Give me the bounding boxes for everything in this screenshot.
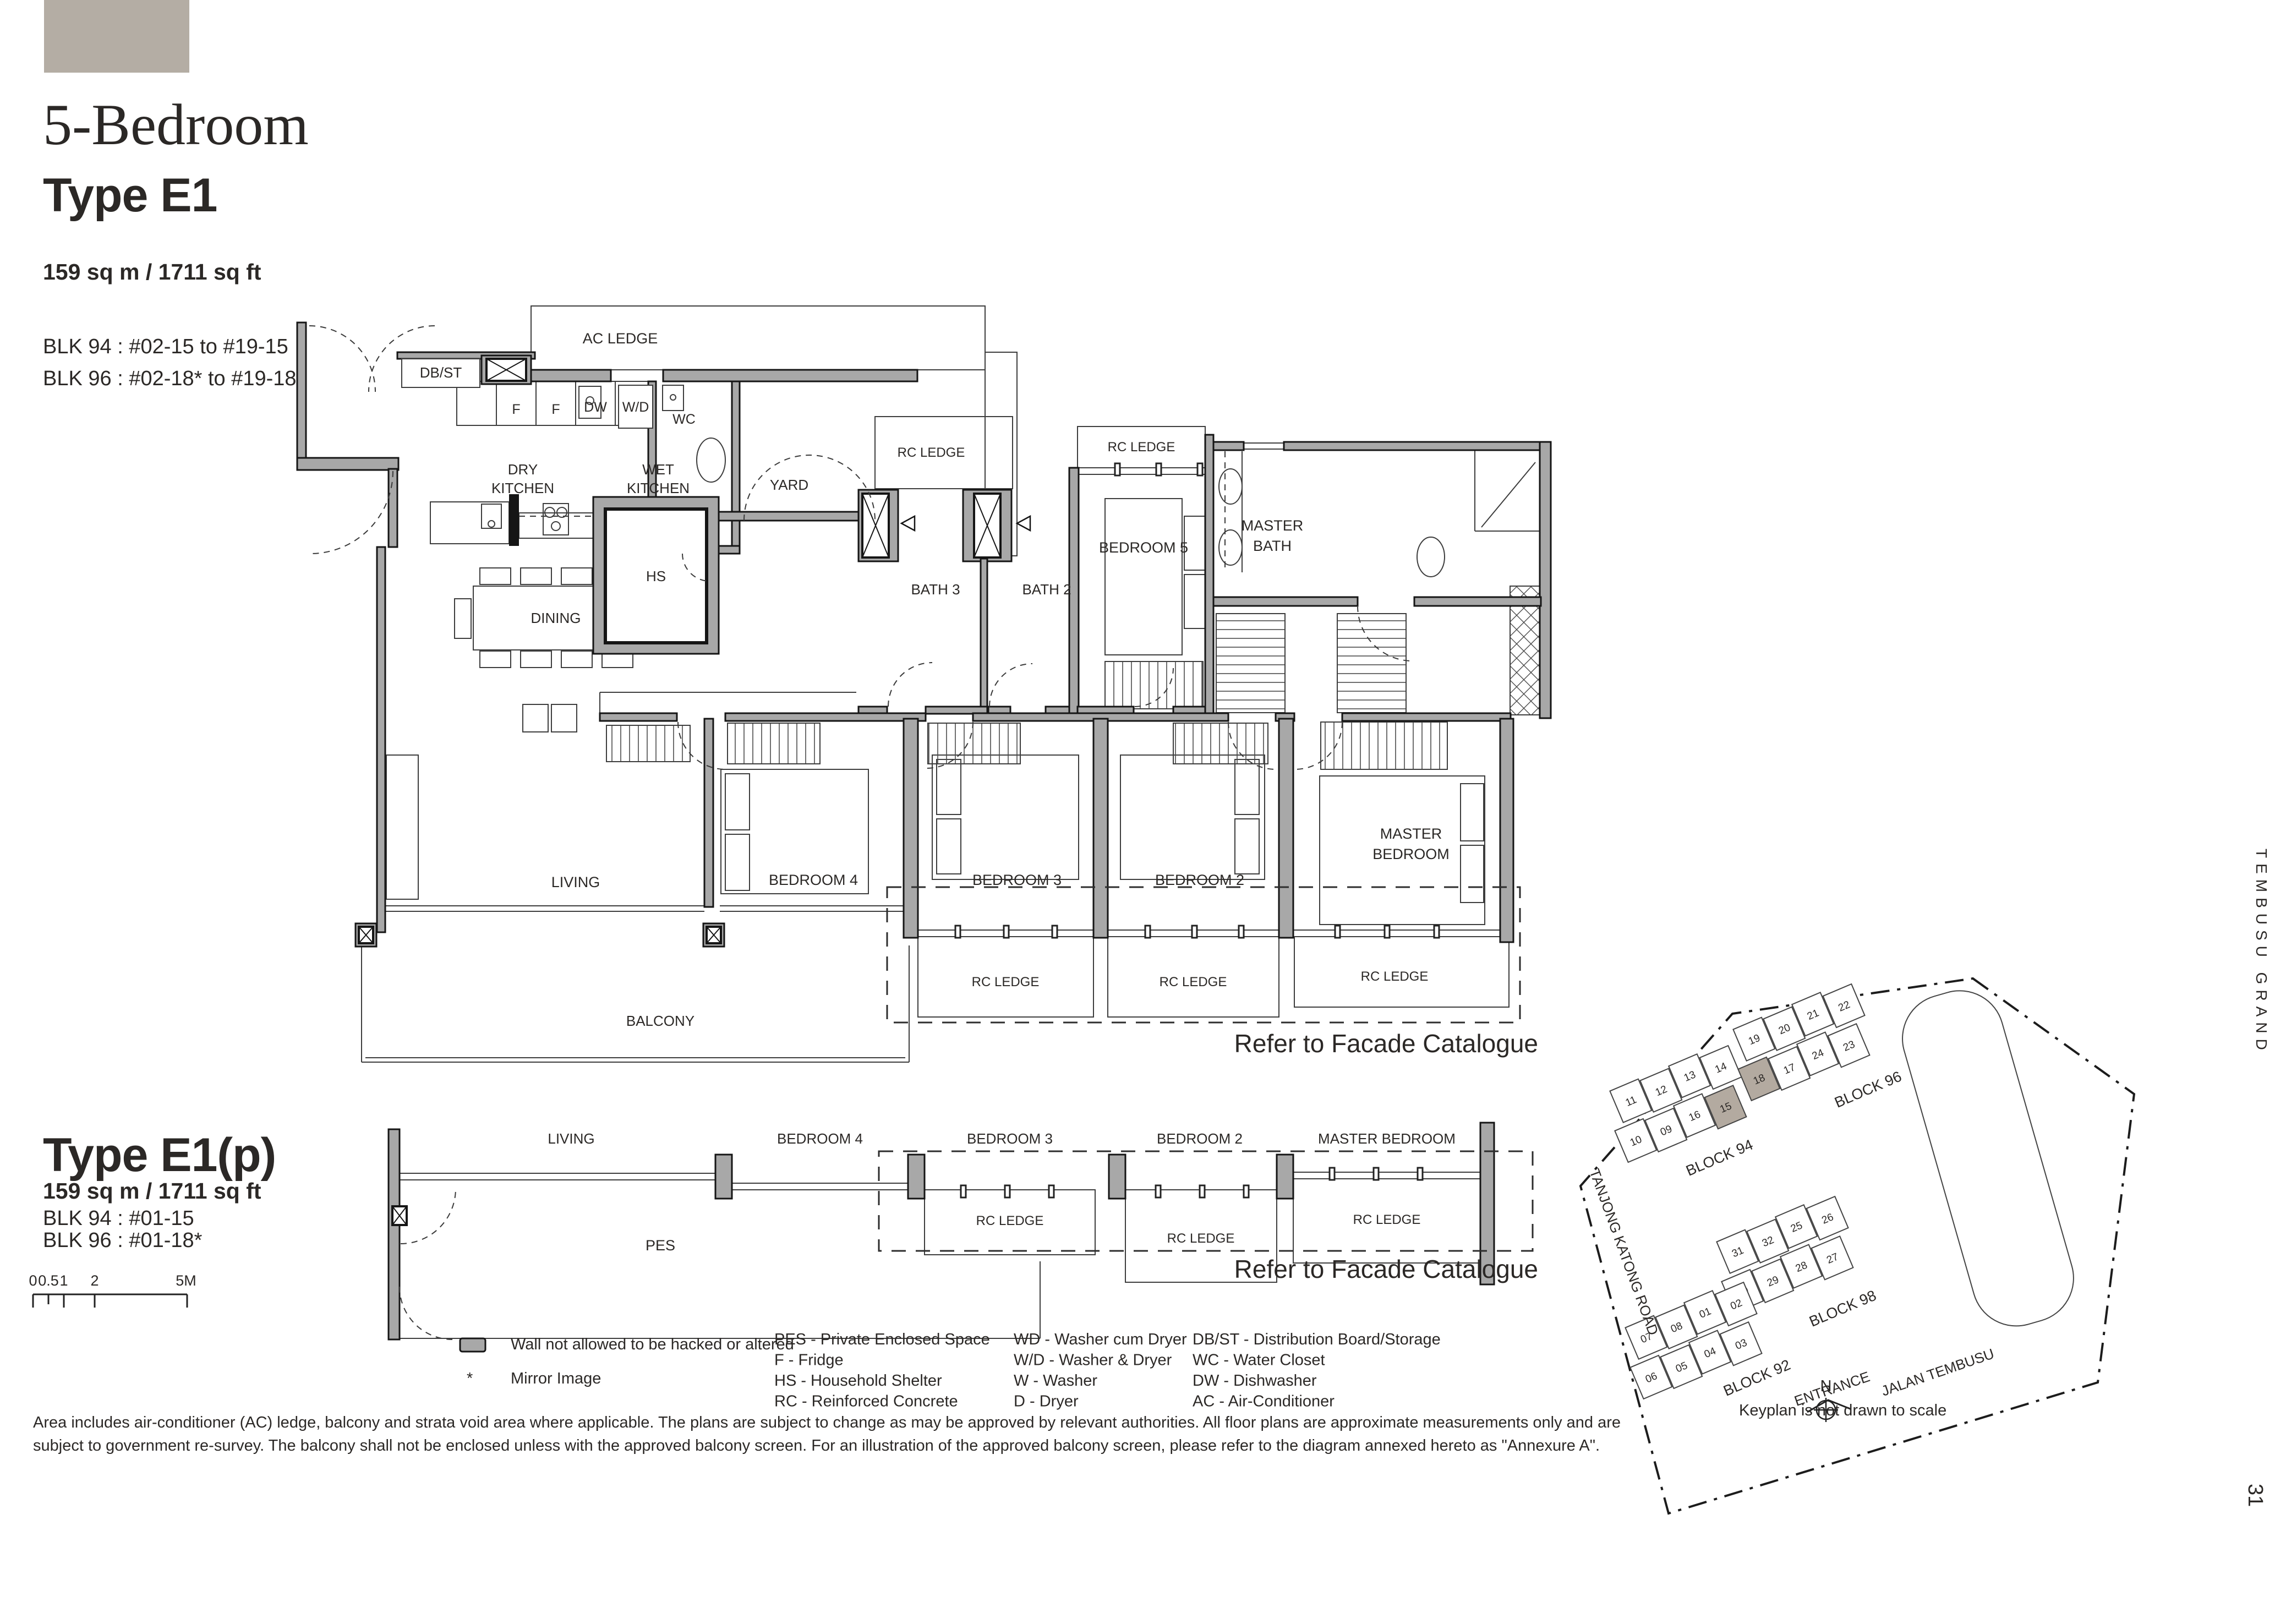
label-hs: HS xyxy=(646,568,666,584)
label-fridge-1: F xyxy=(512,402,520,417)
scale-mark-3: 2 xyxy=(90,1272,99,1289)
label-fridge-2: F xyxy=(551,402,560,417)
legend-col2-item-3: D - Dryer xyxy=(1014,1393,1079,1410)
label-bedroom-5: BEDROOM 5 xyxy=(1099,539,1188,556)
floorplan-page: 5-Bedroom Type E1 159 sq m / 1711 sq ft … xyxy=(0,0,2275,1624)
label-yard: YARD xyxy=(770,477,808,493)
label-jalan-tembusu: JALAN TEMBUSU xyxy=(1879,1345,1997,1399)
e1p-stack-2: BLK 96 : #01-18* xyxy=(43,1229,203,1252)
scale-mark-0: 0 xyxy=(29,1272,37,1289)
scale-bar: 00.5125M xyxy=(29,1272,196,1308)
legend: Wall not allowed to be hacked or altered… xyxy=(460,1331,1441,1410)
fixtures-and-furniture xyxy=(362,306,1540,1338)
mirror-legend-note: Mirror Image xyxy=(511,1370,601,1387)
e1-stack-2: BLK 96 : #02-18* to #19-18* xyxy=(43,367,305,390)
p-label-living: LIVING xyxy=(548,1130,594,1147)
p-label-bedroom-4: BEDROOM 4 xyxy=(777,1130,863,1147)
footer-line-1: Area includes air-conditioner (AC) ledge… xyxy=(33,1414,1621,1431)
label-dbst: DB/ST xyxy=(420,364,462,381)
label-bath-2: BATH 2 xyxy=(1022,581,1071,598)
unit-e1p-heading: Type E1(p) 159 sq m / 1711 sq ft BLK 94 … xyxy=(43,1129,276,1252)
mirror-symbol: * xyxy=(467,1370,473,1387)
header-accent-block xyxy=(44,0,189,73)
e1-area: 159 sq m / 1711 sq ft xyxy=(43,259,261,285)
label-dry-kitchen: DRYKITCHEN xyxy=(491,461,554,496)
e1p-stack-1: BLK 94 : #01-15 xyxy=(43,1207,194,1230)
p-label-bedroom-3: BEDROOM 3 xyxy=(967,1130,1053,1147)
north-label: N xyxy=(1820,1377,1832,1395)
label-rc-ledge-master: RC LEDGE xyxy=(1361,969,1429,984)
legend-col2-item-0: WD - Washer cum Dryer xyxy=(1014,1331,1187,1348)
label-bath-3: BATH 3 xyxy=(911,581,960,598)
scale-mark-4: 5M xyxy=(176,1272,196,1289)
footer-line-2: subject to government re-survey. The bal… xyxy=(33,1437,1600,1455)
label-dw: DW xyxy=(584,400,607,415)
p-label-bedroom-2: BEDROOM 2 xyxy=(1157,1130,1243,1147)
page-number: 31 xyxy=(2244,1484,2267,1507)
label-bedroom-2: BEDROOM 2 xyxy=(1155,872,1244,888)
page-title: 5-Bedroom xyxy=(43,92,309,157)
label-living: LIVING xyxy=(551,874,600,890)
p-label-rc-ledge-master: RC LEDGE xyxy=(1353,1212,1421,1227)
structural-walls xyxy=(297,322,1551,1339)
scale-mark-1: 0.5 xyxy=(38,1272,59,1289)
p-label-rc-ledge-bed3: RC LEDGE xyxy=(976,1213,1044,1228)
label-rc-ledge-bed5: RC LEDGE xyxy=(1108,440,1175,455)
label-ac-ledge: AC LEDGE xyxy=(583,330,658,347)
legend-col3-item-1: WC - Water Closet xyxy=(1193,1352,1325,1369)
legend-col1-item-3: RC - Reinforced Concrete xyxy=(774,1393,958,1410)
label-master-bedroom: MASTERBEDROOM xyxy=(1372,825,1450,862)
label-bedroom-3: BEDROOM 3 xyxy=(972,872,1062,888)
e1-facade-dashed-box xyxy=(887,887,1520,1022)
legend-col2-item-1: W/D - Washer & Dryer xyxy=(1014,1352,1172,1369)
e1p-room-labels: LIVINGBEDROOM 4BEDROOM 3BEDROOM 2MASTER … xyxy=(548,1130,1538,1283)
legend-col1-item-2: HS - Household Shelter xyxy=(774,1372,942,1390)
keyplan-note: Keyplan is not drawn to scale xyxy=(1739,1402,1946,1419)
label-rc-ledge-bed2: RC LEDGE xyxy=(1160,975,1227,989)
legend-col3-item-2: DW - Dishwasher xyxy=(1193,1372,1317,1390)
label-wc: WC xyxy=(672,412,696,427)
legend-col3-item-3: AC - Air-Conditioner xyxy=(1193,1393,1335,1410)
label-block-96: BLOCK 96 xyxy=(1832,1068,1904,1111)
legend-col3-item-0: DB/ST - Distribution Board/Storage xyxy=(1193,1331,1441,1348)
e1-type-name: Type E1 xyxy=(43,169,217,222)
e1p-area: 159 sq m / 1711 sq ft xyxy=(43,1178,261,1204)
legend-col1-item-0: PES - Private Enclosed Space xyxy=(774,1331,990,1348)
e1-facade-note: Refer to Facade Catalogue xyxy=(1234,1029,1538,1058)
label-wd: W/D xyxy=(622,400,649,415)
project-name-vertical: TEMBUSU GRAND xyxy=(2253,849,2270,1056)
e1p-type-name: Type E1(p) xyxy=(43,1129,276,1182)
label-dining: DINING xyxy=(531,610,581,626)
label-rc-ledge-yard: RC LEDGE xyxy=(898,445,965,460)
unit-e1-heading: Type E1 159 sq m / 1711 sq ft BLK 94 : #… xyxy=(43,169,305,390)
p-label-rc-ledge-bed2: RC LEDGE xyxy=(1167,1231,1235,1246)
wall-legend-swatch xyxy=(460,1338,485,1352)
label-balcony: BALCONY xyxy=(626,1013,694,1029)
facilities-outline xyxy=(1892,980,2084,1336)
label-master-bath: MASTERBATH xyxy=(1242,517,1304,554)
legend-col2-item-2: W - Washer xyxy=(1014,1372,1097,1390)
label-wet-kitchen: WETKITCHEN xyxy=(627,461,690,496)
label-rc-ledge-bed3: RC LEDGE xyxy=(972,975,1040,989)
p-facade-note: Refer to Facade Catalogue xyxy=(1234,1255,1538,1283)
label-block-98: BLOCK 98 xyxy=(1807,1287,1879,1330)
legend-col1-item-1: F - Fridge xyxy=(774,1352,844,1369)
wall-legend-note: Wall not allowed to be hacked or altered xyxy=(511,1336,794,1353)
e1-stack-1: BLK 94 : #02-15 to #19-15 xyxy=(43,335,288,358)
label-bedroom-4: BEDROOM 4 xyxy=(769,872,858,888)
keyplan: 1112131410091615192021221817242331322526… xyxy=(1581,978,2134,1513)
label-block-94: BLOCK 94 xyxy=(1683,1136,1756,1179)
p-label-master-bedroom: MASTER BEDROOM xyxy=(1318,1130,1456,1147)
p-label-pes: PES xyxy=(646,1237,675,1254)
scale-mark-2: 1 xyxy=(59,1272,68,1289)
